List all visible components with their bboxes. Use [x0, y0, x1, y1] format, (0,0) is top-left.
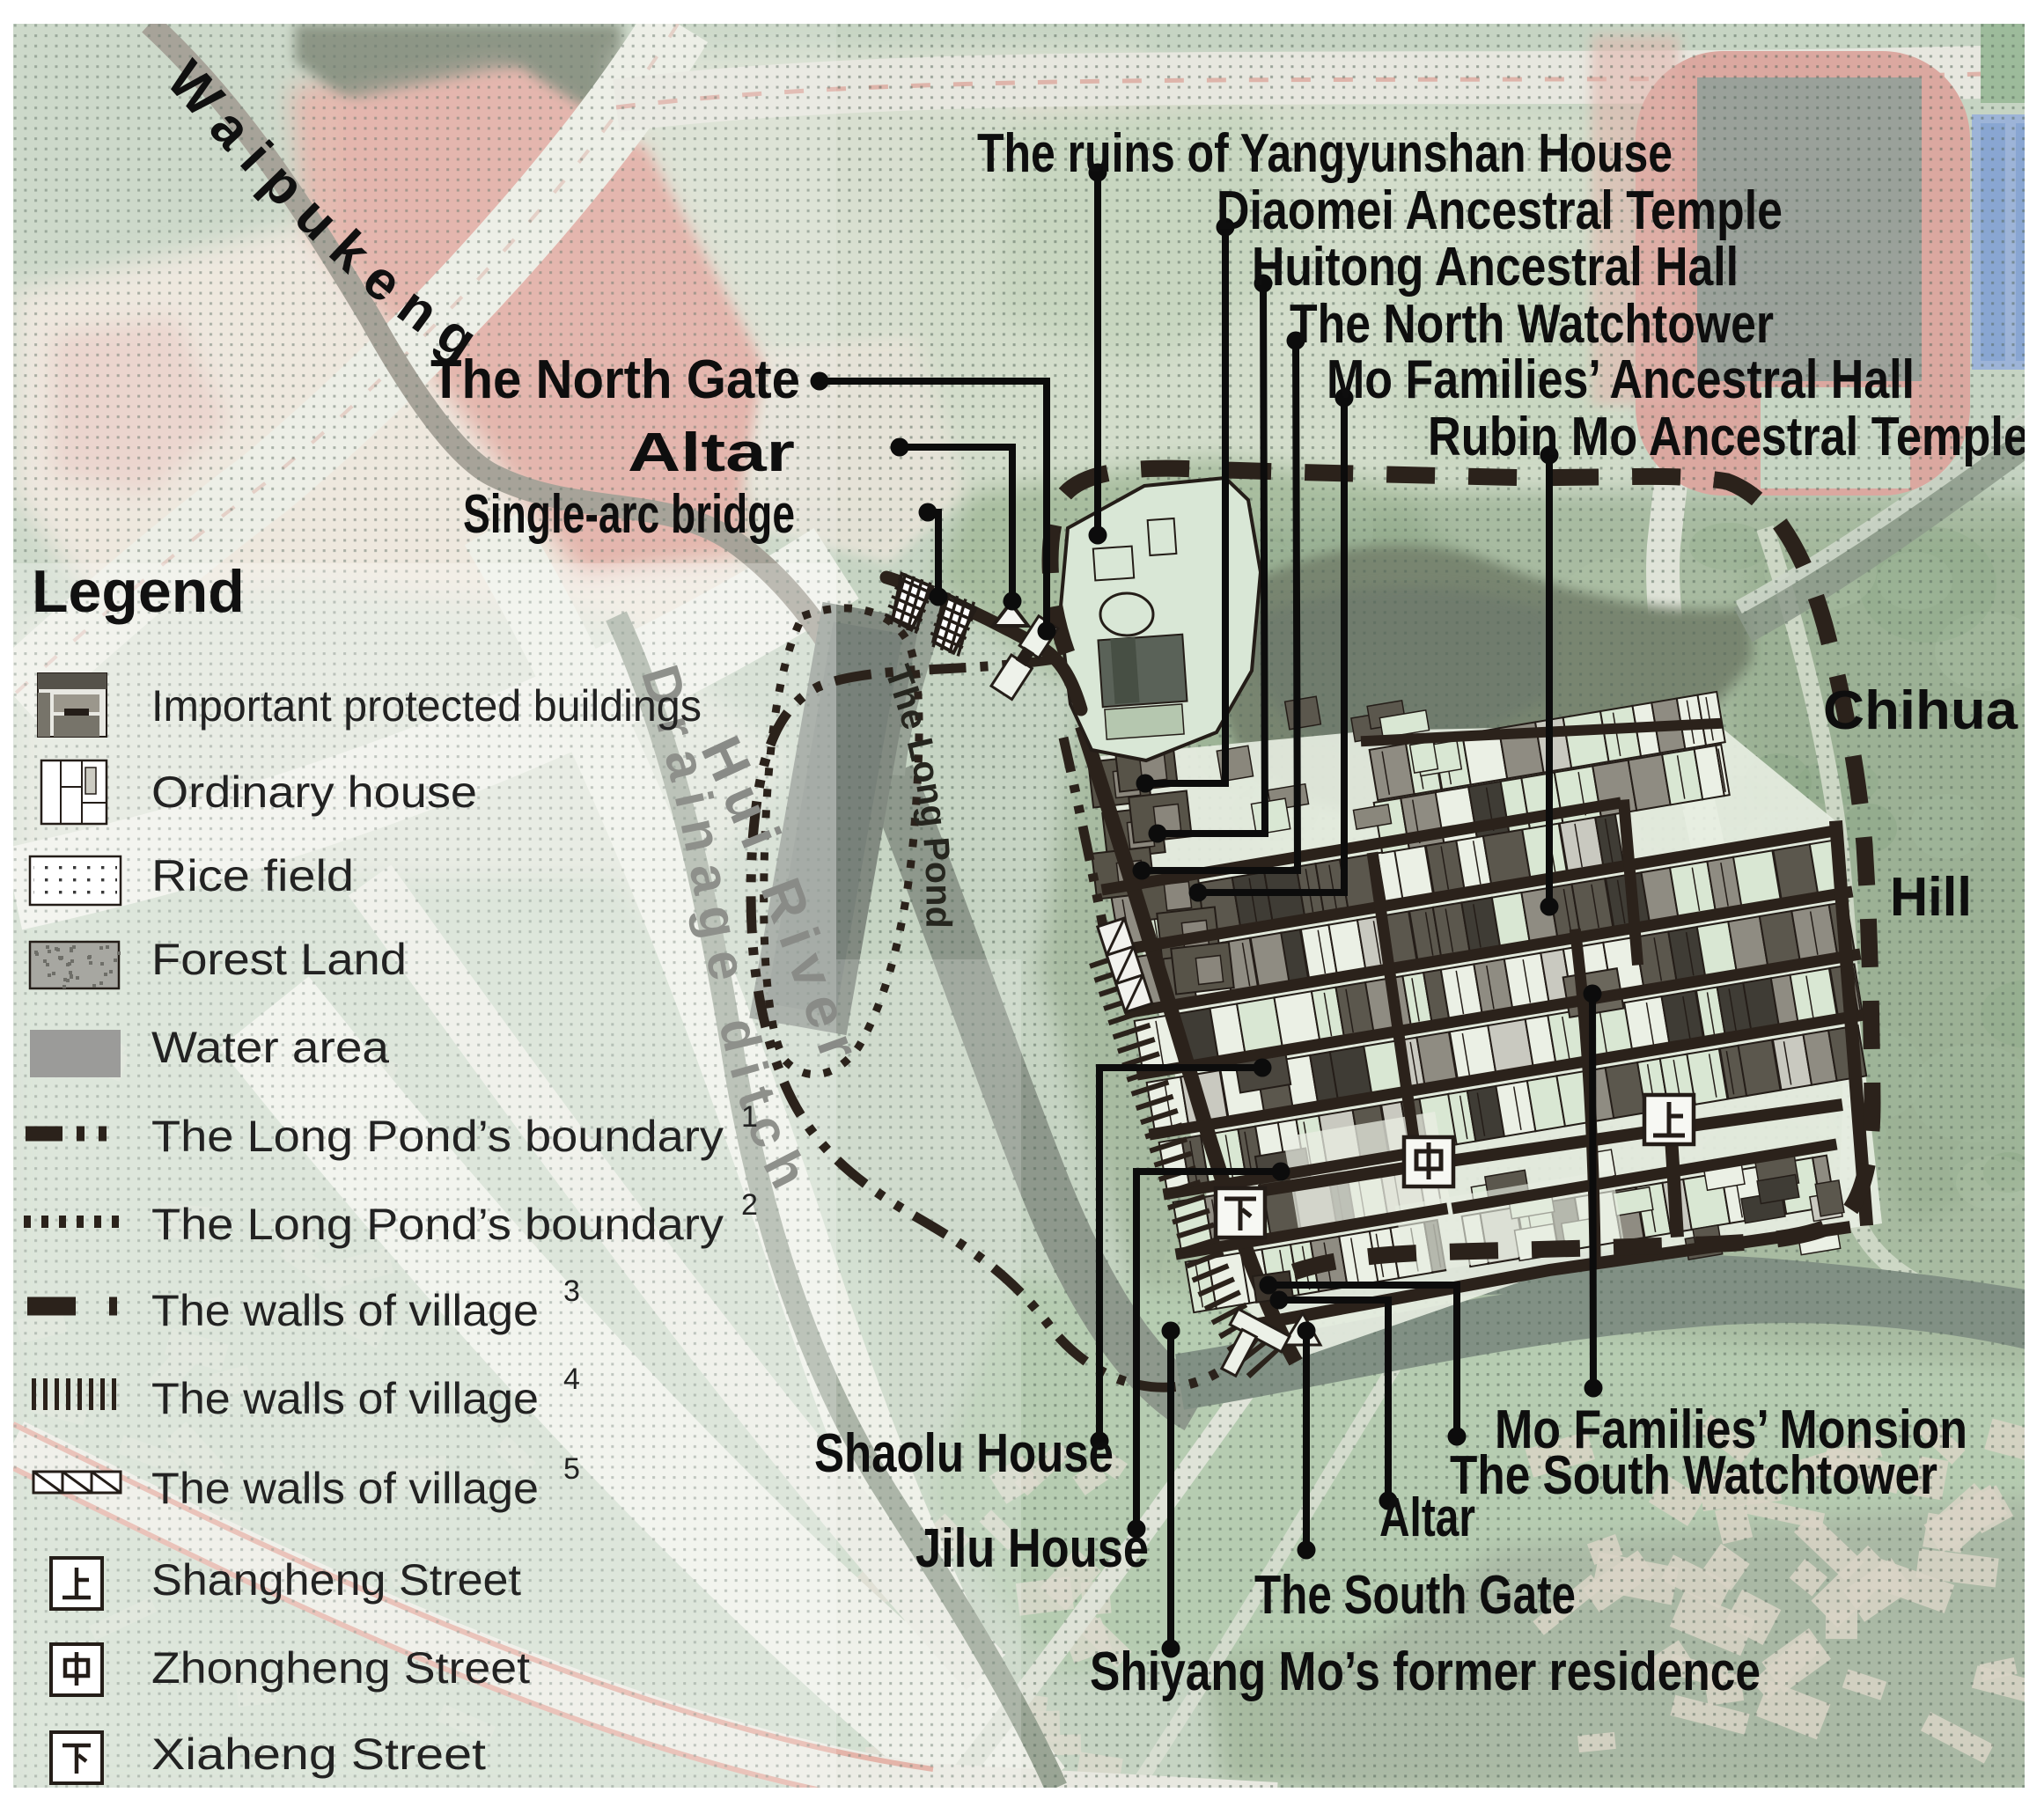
svg-text:2: 2 [741, 1188, 758, 1222]
svg-text:Important protected buildings: Important protected buildings [151, 681, 702, 731]
svg-text:The walls of village: The walls of village [151, 1464, 539, 1513]
svg-text:Huitong Ancestral Hall: Huitong Ancestral Hall [1252, 237, 1739, 297]
svg-text:Shangheng Street: Shangheng Street [151, 1555, 521, 1605]
svg-text:Shaolu House: Shaolu House [814, 1423, 1114, 1484]
svg-text:Single-arc bridge: Single-arc bridge [463, 484, 795, 545]
svg-text:Mo Families’ Ancestral Hall: Mo Families’ Ancestral Hall [1327, 349, 1915, 410]
svg-text:Altar: Altar [628, 422, 795, 483]
svg-text:Altar: Altar [1379, 1487, 1475, 1548]
svg-text:The South Watchtower: The South Watchtower [1450, 1445, 1937, 1506]
svg-text:Rubin Mo Ancestral Temple: Rubin Mo Ancestral Temple [1428, 407, 2029, 467]
svg-text:Shiyang Mo’s former residence: Shiyang Mo’s former residence [1090, 1642, 1761, 1702]
svg-text:Legend: Legend [32, 558, 245, 625]
svg-text:The ruins of Yangyunshan House: The ruins of Yangyunshan House [977, 123, 1673, 184]
svg-text:1: 1 [741, 1100, 758, 1134]
svg-text:Water area: Water area [151, 1023, 389, 1072]
svg-text:The Long Pond’s boundary: The Long Pond’s boundary [151, 1112, 724, 1161]
svg-text:Hill: Hill [1890, 867, 1972, 928]
svg-text:Ordinary house: Ordinary house [151, 768, 477, 817]
svg-text:The North Watchtower: The North Watchtower [1290, 294, 1774, 355]
svg-text:Chihua: Chihua [1823, 680, 2018, 741]
svg-text:Forest Land: Forest Land [151, 935, 407, 984]
svg-text:The North Gate: The North Gate [430, 349, 800, 410]
svg-text:5: 5 [563, 1452, 580, 1486]
svg-text:3: 3 [563, 1274, 580, 1308]
svg-text:Diaomei Ancestral Temple: Diaomei Ancestral Temple [1217, 180, 1783, 241]
svg-text:The walls of village: The walls of village [151, 1374, 539, 1423]
svg-text:The South Gate: The South Gate [1254, 1565, 1576, 1626]
svg-text:Zhongheng Street: Zhongheng Street [151, 1643, 530, 1693]
svg-text:The Long Pond’s boundary: The Long Pond’s boundary [151, 1200, 724, 1249]
svg-text:Jilu House: Jilu House [915, 1518, 1149, 1579]
svg-text:4: 4 [563, 1363, 580, 1396]
svg-text:Rice field: Rice field [151, 851, 354, 900]
svg-text:The walls of village: The walls of village [151, 1286, 539, 1335]
svg-text:Xiaheng Street: Xiaheng Street [151, 1730, 486, 1779]
